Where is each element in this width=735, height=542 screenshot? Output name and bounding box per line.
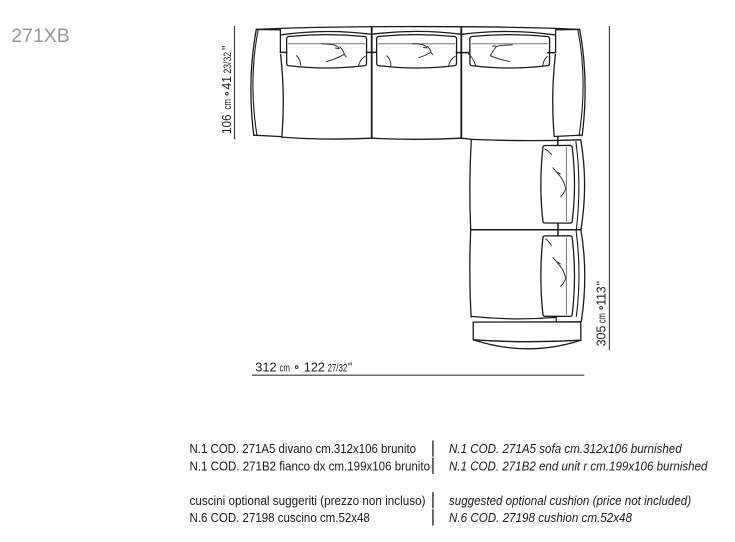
svg-text:cm: cm bbox=[222, 99, 234, 110]
svg-text:113: 113 bbox=[593, 286, 608, 305]
svg-text:cm: cm bbox=[596, 313, 608, 323]
svg-text:cuscini optional suggeriti (pr: cuscini optional suggeriti (prezzo non i… bbox=[190, 493, 426, 508]
svg-text:": " bbox=[348, 360, 353, 375]
svg-text:cm: cm bbox=[280, 363, 291, 375]
svg-text:": " bbox=[593, 281, 608, 286]
svg-text:N.1 COD. 271B2 fianco dx cm.19: N.1 COD. 271B2 fianco dx cm.199x106 brun… bbox=[190, 458, 431, 473]
svg-text:N.1 COD. 271A5 divano cm.312x1: N.1 COD. 271A5 divano cm.312x106 brunito bbox=[190, 441, 417, 456]
svg-text:27/32: 27/32 bbox=[328, 363, 348, 375]
svg-text:N.6 COD. 27198 cushion cm.52x4: N.6 COD. 27198 cushion cm.52x48 bbox=[449, 510, 633, 525]
svg-text:N.1 COD. 271B2 end unit r cm.1: N.1 COD. 271B2 end unit r cm.199x106 bur… bbox=[449, 458, 708, 473]
svg-text:suggested optional cushion (pr: suggested optional cushion (price not in… bbox=[449, 493, 691, 508]
svg-text:305: 305 bbox=[593, 326, 608, 347]
svg-text:N.1 COD. 271A5 sofa cm.312x106: N.1 COD. 271A5 sofa cm.312x106 burnished bbox=[449, 441, 682, 456]
svg-text:N.6 COD. 27198 cuscino cm.52x4: N.6 COD. 27198 cuscino cm.52x48 bbox=[190, 510, 370, 525]
svg-text:312: 312 bbox=[255, 360, 277, 375]
svg-text:23/32: 23/32 bbox=[222, 52, 234, 74]
svg-text:106: 106 bbox=[219, 115, 234, 135]
svg-text:41: 41 bbox=[219, 76, 234, 90]
svg-text:": " bbox=[219, 45, 234, 50]
svg-text:271XB: 271XB bbox=[11, 26, 70, 47]
svg-text:122: 122 bbox=[304, 360, 325, 375]
